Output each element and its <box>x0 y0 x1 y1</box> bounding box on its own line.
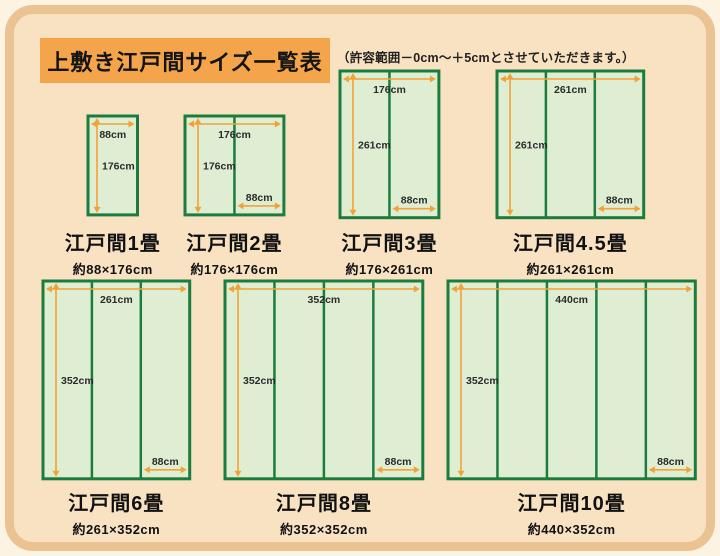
diagram-size: 約261×352cm <box>6 519 226 538</box>
dim-left-label: 261cm <box>515 139 548 151</box>
diagram-edoma-1: 88cm176cm <box>82 110 144 226</box>
mat-diagram-svg: 88cm176cm <box>82 110 144 221</box>
dim-left-label: 352cm <box>466 375 499 387</box>
dim-top-label: 352cm <box>308 294 341 306</box>
tolerance-note: （許容範囲－0cm～＋5cmとさせていただきます。） <box>337 47 635 66</box>
diagram-edoma-10: 440cm352cm88cm <box>442 275 701 490</box>
dim-left-label: 352cm <box>61 375 94 387</box>
diagram-name: 江戸間10畳 <box>462 487 682 516</box>
mat-diagram-svg: 176cm176cm88cm <box>179 110 290 221</box>
dim-bottom-label: 88cm <box>401 195 428 207</box>
dim-top-label: 88cm <box>99 129 126 141</box>
dim-top-label: 440cm <box>555 294 588 306</box>
page-title: 上敷き江戸間サイズ一覧表 <box>40 38 330 83</box>
dim-bottom-label: 88cm <box>606 195 633 207</box>
dim-bottom-label: 88cm <box>246 192 273 204</box>
diagram-size: 約440×352cm <box>462 519 682 538</box>
mat-diagram-svg: 261cm352cm88cm <box>37 275 196 485</box>
diagram-name: 江戸間4.5畳 <box>460 227 680 256</box>
dim-left-label: 176cm <box>203 160 236 172</box>
diagram-name: 江戸間8畳 <box>214 487 434 516</box>
diagram-caption: 江戸間10畳約440×352cm <box>462 487 682 538</box>
diagram-edoma-4-5: 261cm261cm88cm <box>491 65 650 229</box>
mat-diagram-svg: 440cm352cm88cm <box>442 275 701 485</box>
mat-diagram-svg: 176cm261cm88cm <box>334 65 445 224</box>
diagram-edoma-3: 176cm261cm88cm <box>334 65 445 229</box>
mat-diagram-svg: 352cm352cm88cm <box>219 275 429 485</box>
dim-top-label: 261cm <box>100 294 133 306</box>
diagram-edoma-6: 261cm352cm88cm <box>37 275 196 490</box>
diagram-name: 江戸間6畳 <box>6 487 226 516</box>
diagram-caption: 江戸間4.5畳約261×261cm <box>460 227 680 278</box>
diagram-caption: 江戸間6畳約261×352cm <box>6 487 226 538</box>
dim-bottom-label: 88cm <box>657 456 684 468</box>
dim-bottom-label: 88cm <box>385 456 412 468</box>
dim-left-label: 176cm <box>102 160 135 172</box>
diagram-edoma-2: 176cm176cm88cm <box>179 110 290 226</box>
dim-bottom-label: 88cm <box>152 456 179 468</box>
dim-top-label: 261cm <box>554 84 587 96</box>
mat-diagram-svg: 261cm261cm88cm <box>491 65 650 224</box>
diagram-edoma-8: 352cm352cm88cm <box>219 275 429 490</box>
page-title-text: 上敷き江戸間サイズ一覧表 <box>47 45 322 77</box>
dim-top-label: 176cm <box>373 84 406 96</box>
diagram-caption: 江戸間8畳約352×352cm <box>214 487 434 538</box>
dim-left-label: 352cm <box>243 375 276 387</box>
dim-left-label: 261cm <box>358 139 391 151</box>
dim-top-label: 176cm <box>218 129 251 141</box>
diagram-size: 約352×352cm <box>214 519 434 538</box>
